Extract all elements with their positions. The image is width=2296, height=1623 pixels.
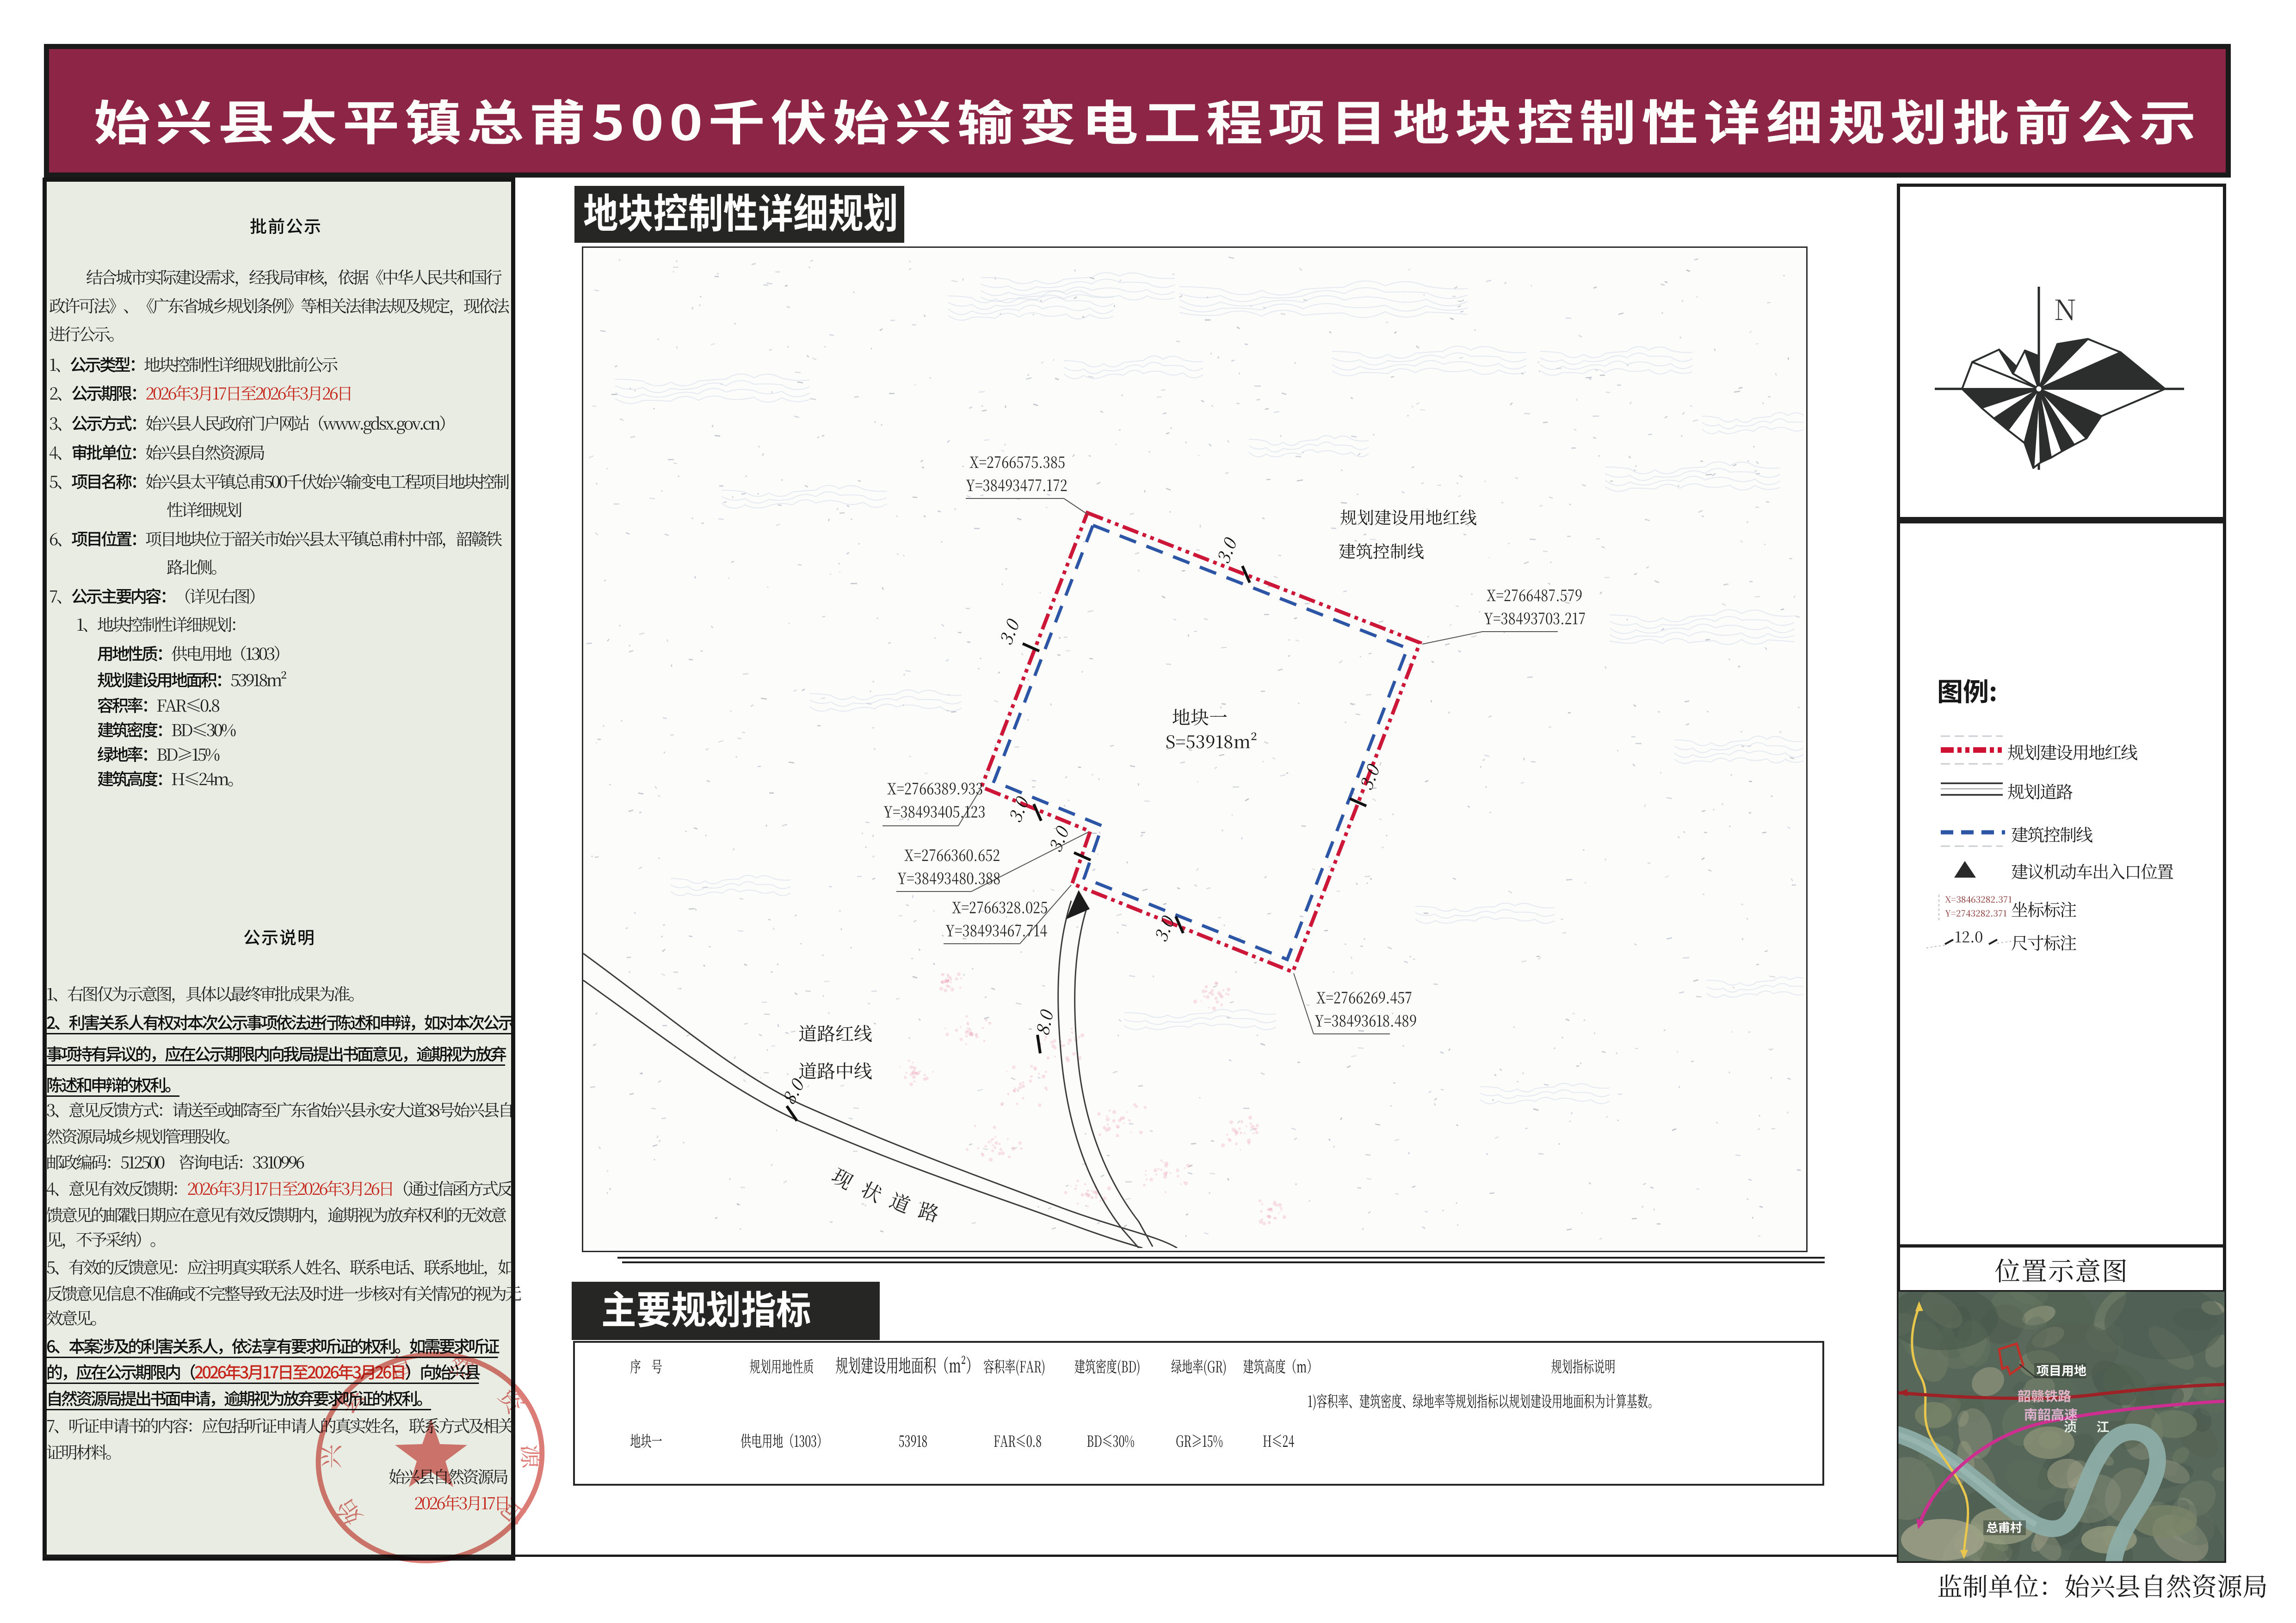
svg-text:Y=38493477.172: Y=38493477.172	[966, 473, 1068, 496]
svg-text:X=2766487.579: X=2766487.579	[1487, 584, 1582, 606]
svg-text:路: 路	[915, 1195, 943, 1228]
svg-text:资: 资	[492, 1380, 534, 1420]
svg-text:道路红线: 道路红线	[798, 1020, 872, 1046]
svg-text:Y=38493703.217: Y=38493703.217	[1484, 607, 1586, 629]
svg-text:县: 县	[328, 1380, 370, 1420]
svg-text:Y=2743282.371: Y=2743282.371	[1945, 907, 2007, 919]
svg-text:X=2766389.933: X=2766389.933	[887, 777, 983, 799]
svg-text:X=2766360.652: X=2766360.652	[904, 843, 1000, 866]
svg-text:浈 江: 浈 江	[2064, 1417, 2117, 1436]
svg-text:Y=38493618.489: Y=38493618.489	[1315, 1009, 1417, 1031]
svg-text:韶赣铁路: 韶赣铁路	[2018, 1386, 2071, 1405]
svg-text:3.0: 3.0	[1042, 822, 1074, 855]
svg-text:道路中线: 道路中线	[798, 1057, 872, 1083]
svg-text:规划建设用地红线: 规划建设用地红线	[1340, 504, 1477, 529]
svg-text:总甫村: 总甫村	[1986, 1518, 2022, 1536]
svg-text:建筑控制线: 建筑控制线	[1339, 538, 1424, 563]
svg-text:12.0: 12.0	[1955, 926, 1983, 947]
svg-text:3.0: 3.0	[1147, 912, 1180, 945]
svg-text:现: 现	[827, 1161, 859, 1195]
svg-text:N: N	[2054, 289, 2076, 328]
svg-text:Y=38493467.714: Y=38493467.714	[945, 919, 1047, 941]
svg-text:X=38463282.371: X=38463282.371	[1945, 893, 2012, 905]
svg-text:Y=38493405.123: Y=38493405.123	[883, 800, 986, 822]
svg-text:X=2766269.457: X=2766269.457	[1316, 986, 1412, 1008]
svg-text:8.0: 8.0	[1029, 1007, 1059, 1038]
svg-text:始: 始	[327, 1494, 369, 1533]
svg-text:地块一: 地块一	[1172, 703, 1228, 730]
svg-text:兴: 兴	[312, 1444, 347, 1469]
svg-text:道: 道	[886, 1185, 915, 1219]
svg-text:S=53918m²: S=53918m²	[1166, 728, 1257, 753]
svg-text:源: 源	[516, 1444, 551, 1469]
svg-text:项目用地: 项目用地	[2037, 1361, 2086, 1379]
svg-text:X=2766575.385: X=2766575.385	[969, 450, 1065, 473]
svg-text:状: 状	[857, 1174, 887, 1208]
svg-text:3.0: 3.0	[992, 615, 1025, 648]
svg-text:Y=38493480.388: Y=38493480.388	[897, 867, 1000, 889]
svg-text:X=2766328.025: X=2766328.025	[952, 896, 1048, 918]
